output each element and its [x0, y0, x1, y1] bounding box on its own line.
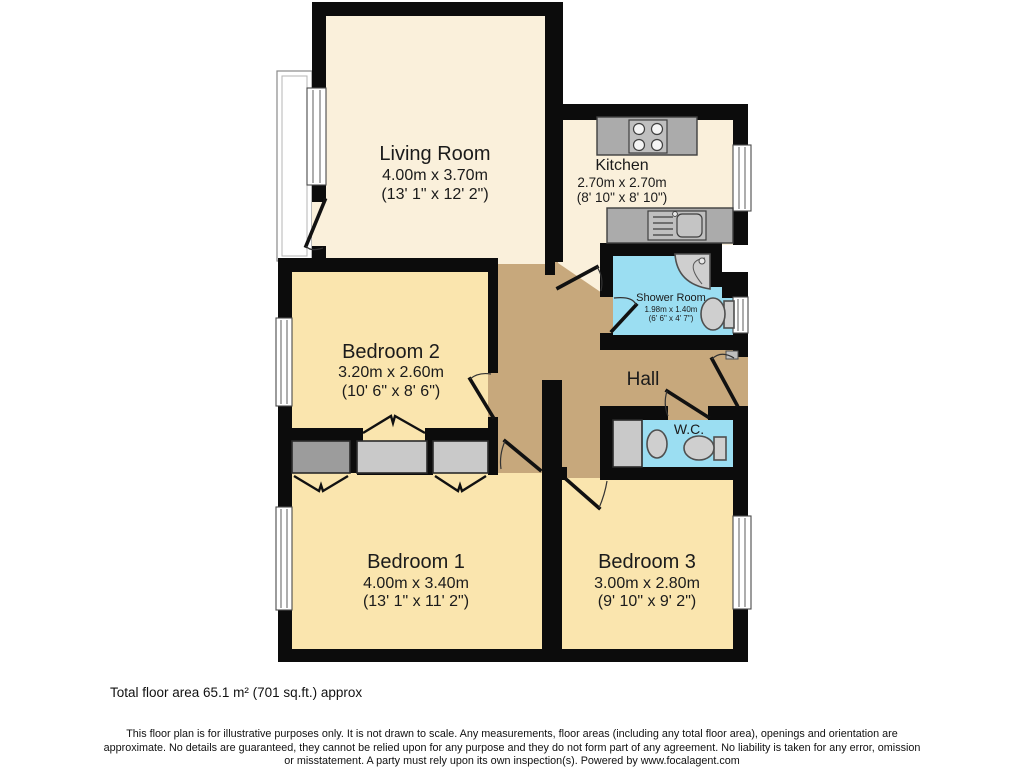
disclaimer-line-3: or misstatement. A party must rely upon … [284, 755, 739, 767]
bedroom-2-window [276, 318, 292, 406]
bedroom-1-window [276, 507, 292, 610]
bedroom-2-dims-m: 3.20m x 2.60m [338, 364, 444, 381]
living-room-dims-ft: (13' 1" x 12' 2") [381, 186, 488, 203]
bedroom-3-window [733, 516, 751, 609]
shower-room-dims-ft: (6' 6" x 4' 7") [649, 314, 694, 323]
living-room-label: Living Room 4.00m x 3.70m (13' 1" x 12' … [379, 143, 490, 203]
bedroom-2-name: Bedroom 2 [342, 341, 440, 363]
bedroom-2-dims-ft: (10' 6" x 8' 6") [342, 383, 440, 400]
shower-toilet-icon [701, 298, 734, 330]
bedroom-3-dims-m: 3.00m x 2.80m [594, 575, 700, 592]
floorplan-svg: Living Room 4.00m x 3.70m (13' 1" x 12' … [0, 0, 1024, 768]
living-room-floor [326, 14, 545, 264]
bedroom-3-dims-ft: (9' 10" x 9' 2") [598, 593, 696, 610]
living-room-dims-m: 4.00m x 3.70m [382, 167, 488, 184]
bedroom-1-name: Bedroom 1 [367, 551, 465, 573]
shower-room-window [733, 297, 748, 333]
kitchen-dims-m: 2.70m x 2.70m [577, 175, 666, 190]
wardrobe-b [357, 441, 427, 473]
bedroom-2-label: Bedroom 2 3.20m x 2.60m (10' 6" x 8' 6") [338, 341, 444, 400]
living-room-window [307, 88, 326, 185]
wc-cupboard [613, 420, 642, 467]
disclaimer-line-2: approximate. No details are guaranteed, … [104, 742, 921, 754]
bedroom-3-label: Bedroom 3 3.00m x 2.80m (9' 10" x 9' 2") [594, 551, 700, 610]
disclaimer-line-1: This floor plan is for illustrative purp… [126, 728, 898, 740]
bedroom-1-label: Bedroom 1 4.00m x 3.40m (13' 1" x 11' 2"… [363, 551, 469, 610]
wardrobe-c [433, 441, 488, 473]
sink-icon [607, 208, 733, 243]
wc-label: W.C. [674, 421, 704, 437]
bedroom-3-name: Bedroom 3 [598, 551, 696, 573]
kitchen-name: Kitchen [595, 157, 648, 174]
bedroom-1-dims-ft: (13' 1" x 11' 2") [363, 593, 469, 610]
shower-room-dims-m: 1.98m x 1.40m [645, 305, 698, 314]
wc-toilet-icon [684, 436, 726, 460]
living-room-name: Living Room [379, 143, 490, 165]
total-floor-area-text: Total floor area 65.1 m² (701 sq.ft.) ap… [110, 685, 362, 700]
disclaimer-text: This floor plan is for illustrative purp… [104, 728, 921, 767]
kitchen-window [733, 145, 751, 211]
kitchen-dims-ft: (8' 10" x 8' 10") [577, 190, 668, 205]
hob-icon [597, 117, 697, 155]
hall-label: Hall [627, 369, 660, 390]
bedroom-1-dims-m: 4.00m x 3.40m [363, 575, 469, 592]
wc-basin-icon [647, 430, 667, 458]
shower-room-name: Shower Room [636, 292, 706, 304]
wardrobe-a [292, 441, 350, 473]
